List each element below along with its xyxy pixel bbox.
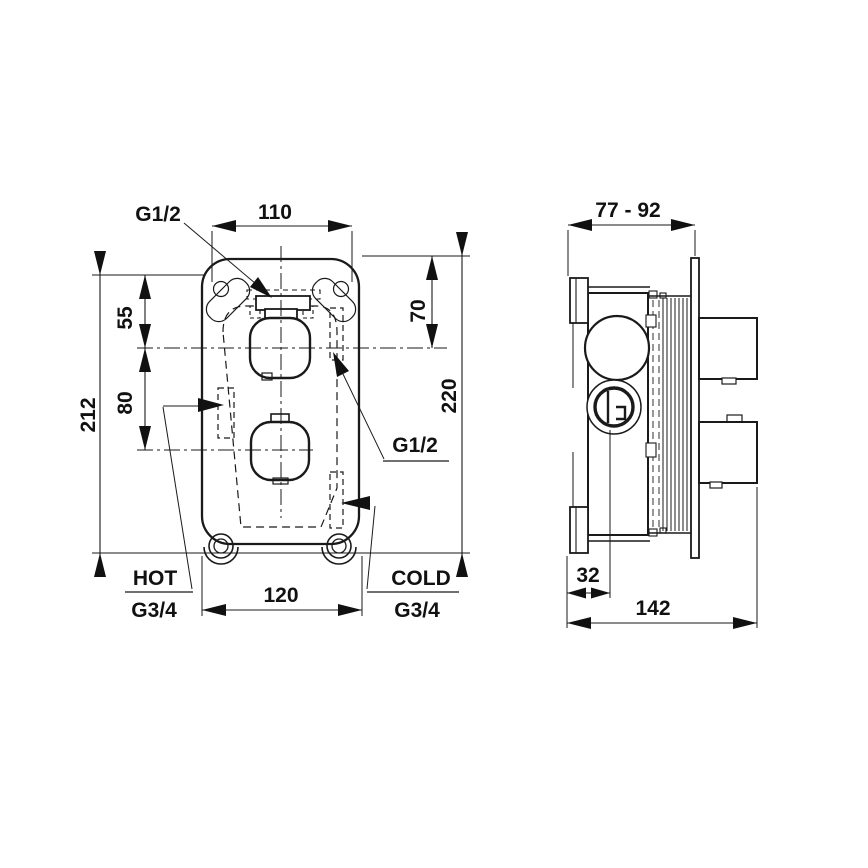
arrowhead (328, 220, 352, 232)
side-view: 77 - 92 32 142 (567, 199, 757, 629)
upper-handle-step (722, 378, 736, 384)
lower-handle-step (710, 482, 722, 488)
arrowhead (733, 617, 757, 629)
dim-label-212: 212 (77, 397, 100, 432)
label-g12-top: G1/2 (135, 203, 181, 226)
label-g12-side: G1/2 (392, 434, 438, 457)
arrowhead (567, 588, 586, 599)
dim-label-77-92: 77 - 92 (595, 199, 660, 222)
dimension-depth-range: 77 - 92 (568, 199, 695, 276)
arrowhead (671, 219, 695, 231)
arrowhead (456, 232, 468, 256)
dim-label-110: 110 (258, 201, 292, 224)
dimension-width-bottom: 120 (202, 556, 362, 616)
flange-outline (570, 278, 588, 323)
mounting-flange-top (570, 278, 588, 323)
dim-label-32: 32 (576, 564, 599, 587)
sleeve-clip (646, 443, 656, 457)
dim-label-220: 220 (438, 378, 461, 413)
dimension-220: 220 (438, 232, 468, 577)
arrowhead (568, 219, 592, 231)
label-cold-thread: G3/4 (394, 599, 440, 622)
flange-outline (570, 507, 588, 553)
arrowhead (426, 324, 438, 348)
arrowhead (338, 604, 362, 616)
arrowhead (202, 604, 226, 616)
sleeve-clip (646, 315, 656, 327)
dim-label-70: 70 (407, 299, 430, 322)
dim-label-120: 120 (263, 584, 298, 607)
dimension-55: 55 (114, 275, 151, 348)
top-port-flange (256, 296, 310, 310)
extension-sleeve (646, 291, 692, 536)
mounting-flange-bottom (570, 507, 588, 553)
dim-label-80: 80 (114, 391, 137, 414)
wall-plate (691, 258, 699, 558)
arrowhead (94, 251, 106, 275)
arrowhead (139, 426, 151, 450)
lower-handle-knob (251, 422, 309, 480)
label-hot: HOT (133, 567, 178, 590)
lower-port-cartridge (587, 380, 641, 434)
arrowhead (94, 553, 106, 577)
leader-line (367, 506, 375, 589)
dimension-70: 70 (407, 256, 438, 348)
arrowhead (456, 553, 468, 577)
mixer-valve-dimension-drawing: 110 55 80 212 (0, 0, 868, 868)
technical-drawing-page: 110 55 80 212 (0, 0, 868, 868)
arrowhead (567, 617, 591, 629)
leader-line (163, 407, 192, 589)
dim-label-142: 142 (635, 597, 670, 620)
label-cold: COLD (391, 567, 451, 590)
upper-port-circle (585, 316, 649, 380)
dimension-212: 212 (77, 251, 106, 577)
dim-label-55: 55 (114, 306, 137, 330)
lower-handle-side-profile (699, 422, 757, 483)
arrowhead (212, 220, 236, 232)
label-hot-thread: G3/4 (131, 599, 177, 622)
arrowhead (591, 588, 610, 599)
arrowhead (139, 324, 151, 348)
arrowhead (139, 348, 151, 372)
dimension-80: 80 (114, 348, 151, 450)
arrowhead (426, 256, 438, 280)
sleeve-notch (649, 291, 657, 298)
front-view: 110 55 80 212 (77, 201, 470, 622)
upper-handle-side-profile (699, 318, 757, 379)
arrowhead (139, 275, 151, 299)
